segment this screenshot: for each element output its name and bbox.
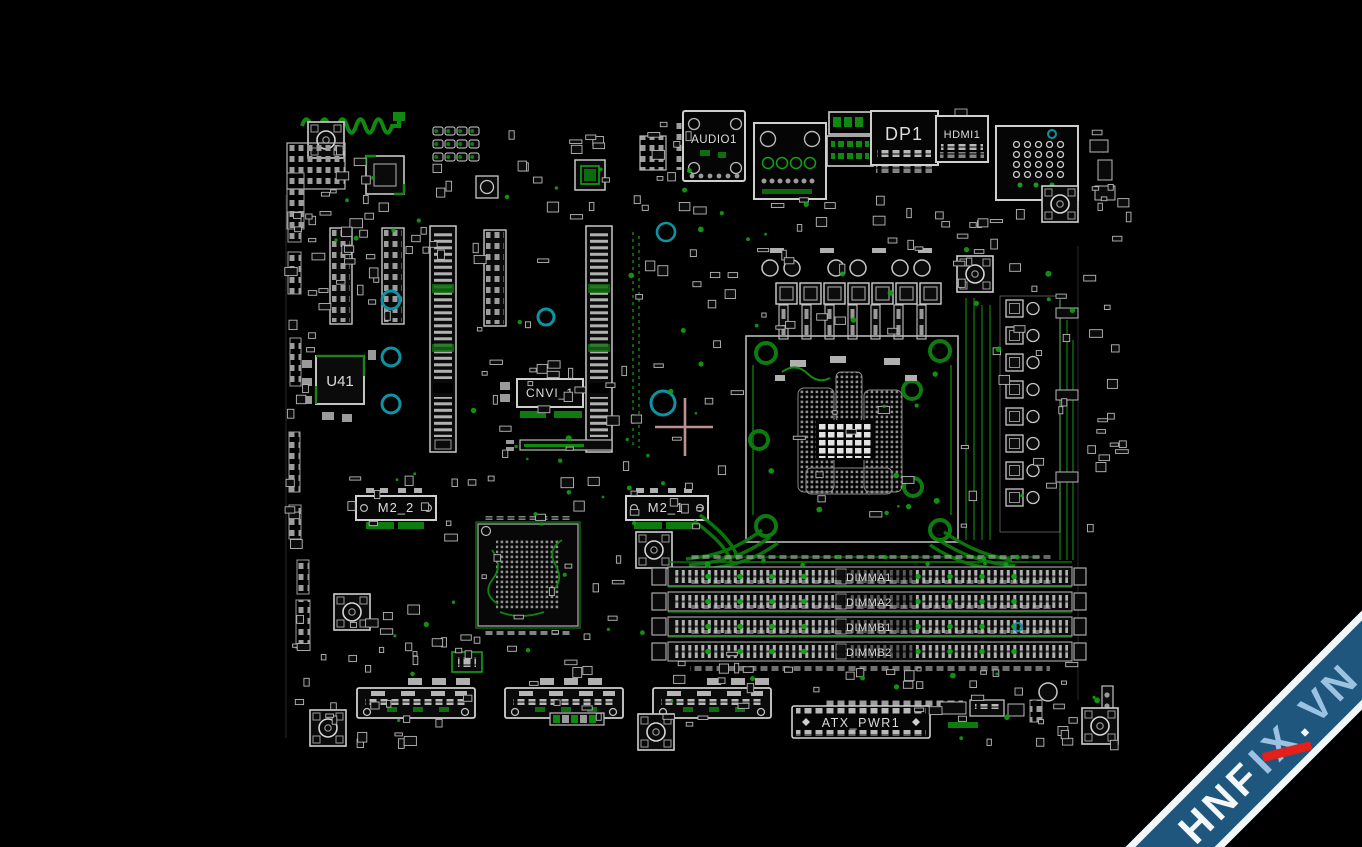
mounting-hole [1042,186,1078,222]
pin-header[interactable] [484,230,506,326]
mounting-hole-teal [657,223,675,241]
atx-power-connector[interactable]: ATX_PWR1 [792,706,930,738]
mounting-hole [636,532,672,568]
boardview-viewport: AUDIO1 DP1 HDMI1 U41 CNVI_1 [0,0,1362,847]
qfp-chip[interactable] [366,156,404,194]
label-m2-2: M2_2 [378,500,415,515]
green-chip[interactable] [575,160,605,190]
label-atx-pwr1: ATX_PWR1 [822,716,900,730]
rear-io-usb-block[interactable] [754,123,826,199]
label-audio1: AUDIO1 [691,134,737,146]
label-dimmb2: DIMMB2 [846,647,892,659]
pin-header[interactable] [330,228,352,324]
pcie-slot-1[interactable] [430,226,456,452]
rear-io-dp-connector[interactable]: DP1 [871,111,938,173]
label-u41: U41 [326,373,354,390]
boardview-canvas: AUDIO1 DP1 HDMI1 U41 CNVI_1 [0,0,1362,847]
rear-io-usb-stack[interactable] [827,112,873,166]
u41-chip[interactable]: U41 [302,350,376,422]
label-m2-1: M2_1 [648,500,685,515]
label-hdmi1: HDMI1 [944,129,981,141]
crosshair-cursor [655,398,713,456]
cpu-socket[interactable] [746,336,958,542]
label-dp1: DP1 [885,124,923,144]
mounting-hole [1082,708,1118,744]
rear-io-audio-connector[interactable]: AUDIO1 [674,111,745,181]
rear-io-hdmi-connector[interactable]: HDMI1 [936,109,988,162]
top-mid-cluster [433,127,675,241]
